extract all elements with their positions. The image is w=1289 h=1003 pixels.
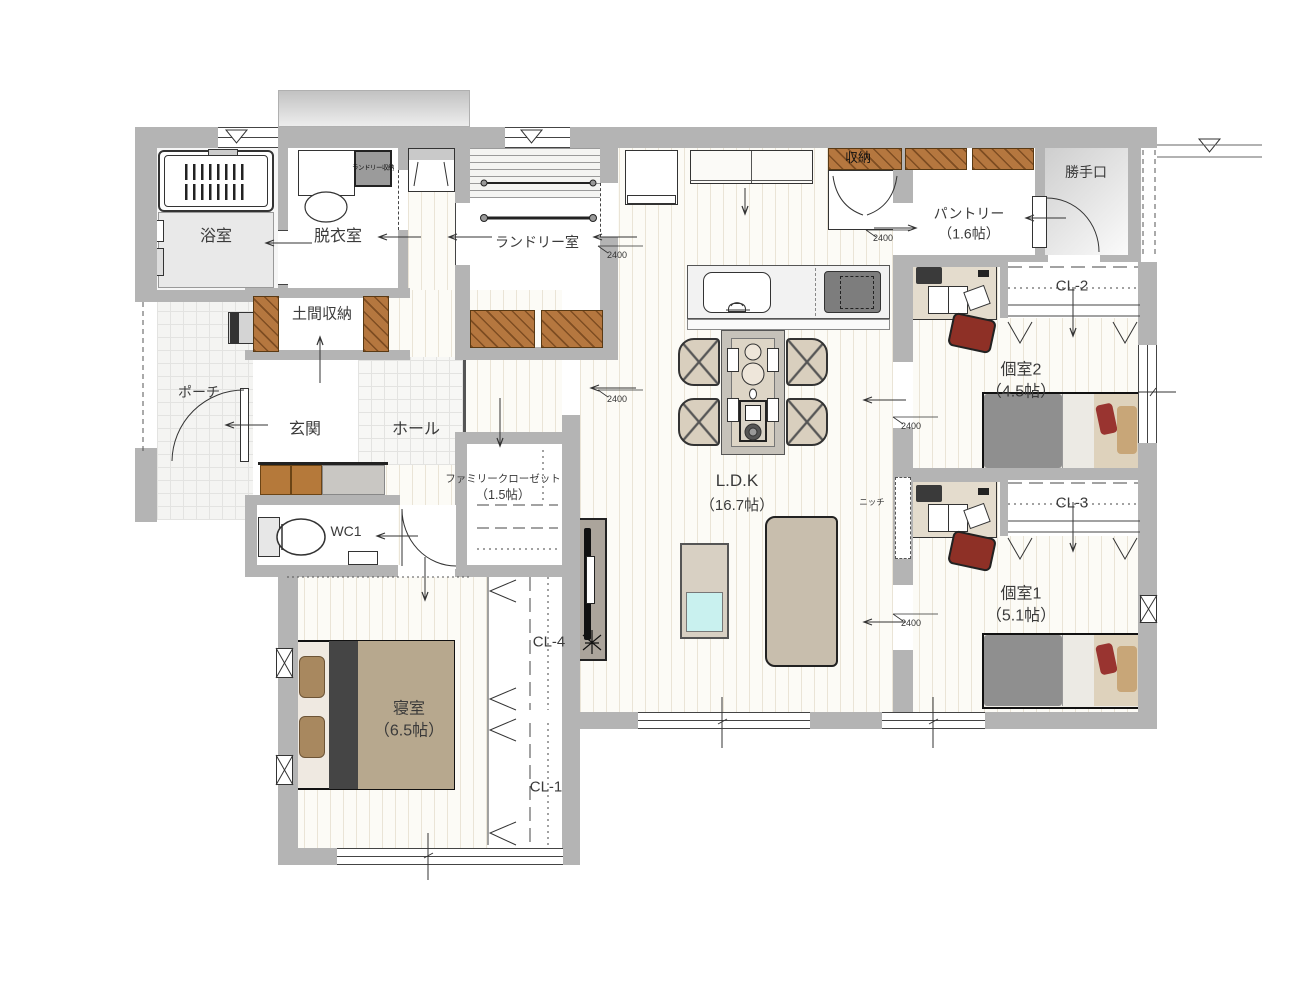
label-bedroom: 寝室（6.5帖）: [374, 699, 444, 744]
sofa: [765, 516, 838, 667]
label-room2: 個室2（4.5帖）: [986, 360, 1056, 405]
label-dressing: 脱衣室: [314, 226, 362, 248]
dining-chair-3: [786, 338, 828, 386]
low-table-cyan: [686, 592, 723, 632]
bedroom-vent-2: [276, 755, 293, 785]
double-bed-fold: [329, 641, 358, 789]
room2-bed-blanket: [984, 394, 1062, 468]
room1-vent: [1140, 595, 1157, 623]
label-room1: 個室1（5.1帖）: [986, 584, 1056, 629]
label-room1-size: （5.1帖）: [986, 608, 1056, 625]
kitchen-faucet: [728, 303, 746, 312]
table-utensil-pad-2: [767, 348, 779, 372]
wall-wc-top: [245, 495, 400, 505]
laundry-door-opening: [455, 203, 470, 265]
doma-hatch-left: [253, 296, 279, 352]
label-hall: ホール: [392, 419, 440, 441]
bath-door-opening: [278, 230, 288, 285]
kitchen-island-separator: [815, 268, 816, 316]
label-pantry: パントリー（1.6帖）: [934, 204, 1005, 243]
label-cl3: CL-3: [1056, 493, 1089, 514]
wall-bedroom-left: [278, 565, 298, 848]
backdoor-opening: [1048, 255, 1100, 267]
room2-bed-sheet: [1062, 394, 1094, 468]
label-storage-top: 収納: [845, 149, 871, 167]
dining-chair-4: [786, 398, 828, 446]
toilet-tank: [258, 517, 280, 557]
room1-eraser: [978, 488, 989, 495]
wall-bath-bottom: [135, 290, 255, 302]
pantry-hatch-right: [972, 148, 1034, 170]
room1-papers: [928, 504, 968, 532]
bedroom-vent-1: [276, 648, 293, 678]
label-family-closet: ファミリークローゼット（1.5帖）: [445, 472, 561, 504]
label-cl1: CL-1: [530, 777, 563, 798]
label-ldk-name: L.D.K: [716, 471, 759, 490]
wall-cl3-stub: [1000, 480, 1008, 536]
table-appliance-window: [745, 405, 761, 421]
room1-bed-sheet: [1062, 635, 1094, 706]
kitchen-cupboard-edge: [690, 180, 813, 181]
bedroom-closet-interior: [488, 577, 562, 848]
wall-porch-corner: [135, 448, 157, 522]
wall-top: [135, 127, 1157, 148]
bedroom-window-south: [337, 848, 563, 865]
corridor-storage-top: [409, 149, 454, 160]
wall-cl2-stub: [1000, 262, 1008, 318]
porch-bench-dark: [230, 312, 239, 344]
wc-door-opening: [400, 505, 456, 569]
entrance-floor: [358, 357, 466, 465]
floor-plan: 浴室 脱衣室 ランドリー収納 ランドリー室 収納 パントリー（1.6帖） 勝手口…: [0, 0, 1289, 1003]
label-entrance: 玄関: [289, 419, 321, 441]
label-pantry-size: （1.6帖）: [938, 225, 999, 241]
eave-block: [278, 90, 470, 127]
wall-laundry-bottom: [455, 347, 618, 360]
backdoor-step: [1141, 148, 1157, 262]
refrigerator-door: [627, 195, 676, 204]
dim-2400-d: 2400: [901, 421, 921, 431]
label-porch: ポーチ: [178, 383, 220, 403]
label-room1-name: 個室1: [1001, 586, 1042, 603]
label-niche: ニッチ: [859, 497, 885, 509]
double-bed-pillow-2: [299, 716, 325, 758]
dim-2400-a: 2400: [607, 250, 627, 260]
wall-fc-top: [455, 432, 572, 444]
bath-window: [218, 127, 278, 148]
label-cl4: CL-4: [533, 632, 566, 653]
bath-washplace-floor: [158, 212, 274, 288]
dim-2400-c: 2400: [607, 394, 627, 404]
pantry-door-opening: [893, 203, 913, 255]
dim-2400-b: 2400: [873, 233, 893, 243]
laundry-closet-hatch-right: [541, 310, 603, 348]
bath-faucet: [208, 149, 238, 156]
laundry-window: [505, 127, 570, 148]
label-room2-size: （4.5帖）: [986, 384, 1056, 401]
kitchen-counter-lip: [687, 319, 890, 330]
label-cl2: CL-2: [1056, 276, 1089, 297]
label-wc: WC1: [330, 522, 361, 542]
dining-chair-1: [678, 338, 720, 386]
dressing-door-opening: [398, 170, 408, 230]
dining-chair-2: [678, 398, 720, 446]
room2-laptop: [916, 267, 942, 284]
tv-mount: [586, 556, 595, 604]
label-ldk-size: （16.7帖）: [700, 497, 774, 514]
label-laundry: ランドリー室: [495, 233, 579, 253]
label-pantry-name: パントリー: [934, 205, 1005, 221]
label-doma: 土間収納: [292, 304, 352, 325]
pantry-hatch-left: [905, 148, 967, 170]
room2-window-east: [1138, 345, 1157, 443]
laundry-closet-hatch-left: [470, 310, 535, 348]
storage-cabinet: [828, 170, 902, 230]
room1-bed-blanket: [984, 635, 1062, 706]
dim-2400-e: 2400: [901, 618, 921, 628]
label-bath: 浴室: [200, 226, 232, 248]
shoe-cabinet-brown-2: [291, 465, 322, 495]
kitchen-cupboard-divider: [751, 151, 752, 183]
label-family-closet-name: ファミリークローゼット: [445, 473, 561, 485]
niche-recess: [895, 477, 911, 559]
backdoor-leaf: [1032, 196, 1047, 248]
label-room2-name: 個室2: [1001, 362, 1042, 379]
wc-hand-basin: [348, 551, 378, 565]
front-door-leaf: [240, 388, 249, 462]
label-bedroom-size: （6.5帖）: [374, 723, 444, 740]
room1-laptop: [916, 485, 942, 502]
ldk-window-right: [882, 712, 985, 729]
bathtub-jets-row1: [185, 164, 247, 180]
room1-pillow-tan: [1117, 646, 1137, 692]
shoe-cabinet-brown-1: [260, 465, 291, 495]
laundry-ldk-door-opening: [600, 183, 618, 237]
room2-door-opening: [893, 362, 913, 428]
label-bedroom-name: 寝室: [393, 701, 425, 718]
label-ldk: L.D.K（16.7帖）: [700, 469, 774, 517]
table-utensil-pad-4: [767, 398, 779, 422]
doma-hatch-right: [363, 296, 389, 352]
wall-right: [1138, 262, 1157, 712]
room2-pillow-tan: [1117, 406, 1137, 454]
double-bed-pillow-1: [299, 656, 325, 698]
room2-eraser: [978, 270, 989, 277]
ldk-window-left: [638, 712, 810, 729]
wall-topright-corner: [1128, 148, 1141, 262]
laundry-slats: [470, 148, 600, 198]
table-utensil-pad-3: [727, 398, 739, 422]
wall-left-upper: [135, 148, 157, 302]
gutter-lines: [1157, 145, 1262, 157]
label-family-closet-size: （1.5帖）: [476, 488, 531, 502]
room2-papers: [928, 286, 968, 314]
bathtub-jets-row2: [185, 184, 247, 200]
table-utensil-pad-1: [727, 348, 739, 372]
label-backdoor: 勝手口: [1065, 163, 1107, 183]
shoe-cabinet-gray: [322, 465, 385, 495]
kitchen-stove-grate: [840, 276, 874, 309]
family-closet-interior: [467, 444, 562, 565]
washing-machine: [298, 150, 355, 196]
label-laundry-storage: ランドリー収納: [352, 163, 394, 172]
